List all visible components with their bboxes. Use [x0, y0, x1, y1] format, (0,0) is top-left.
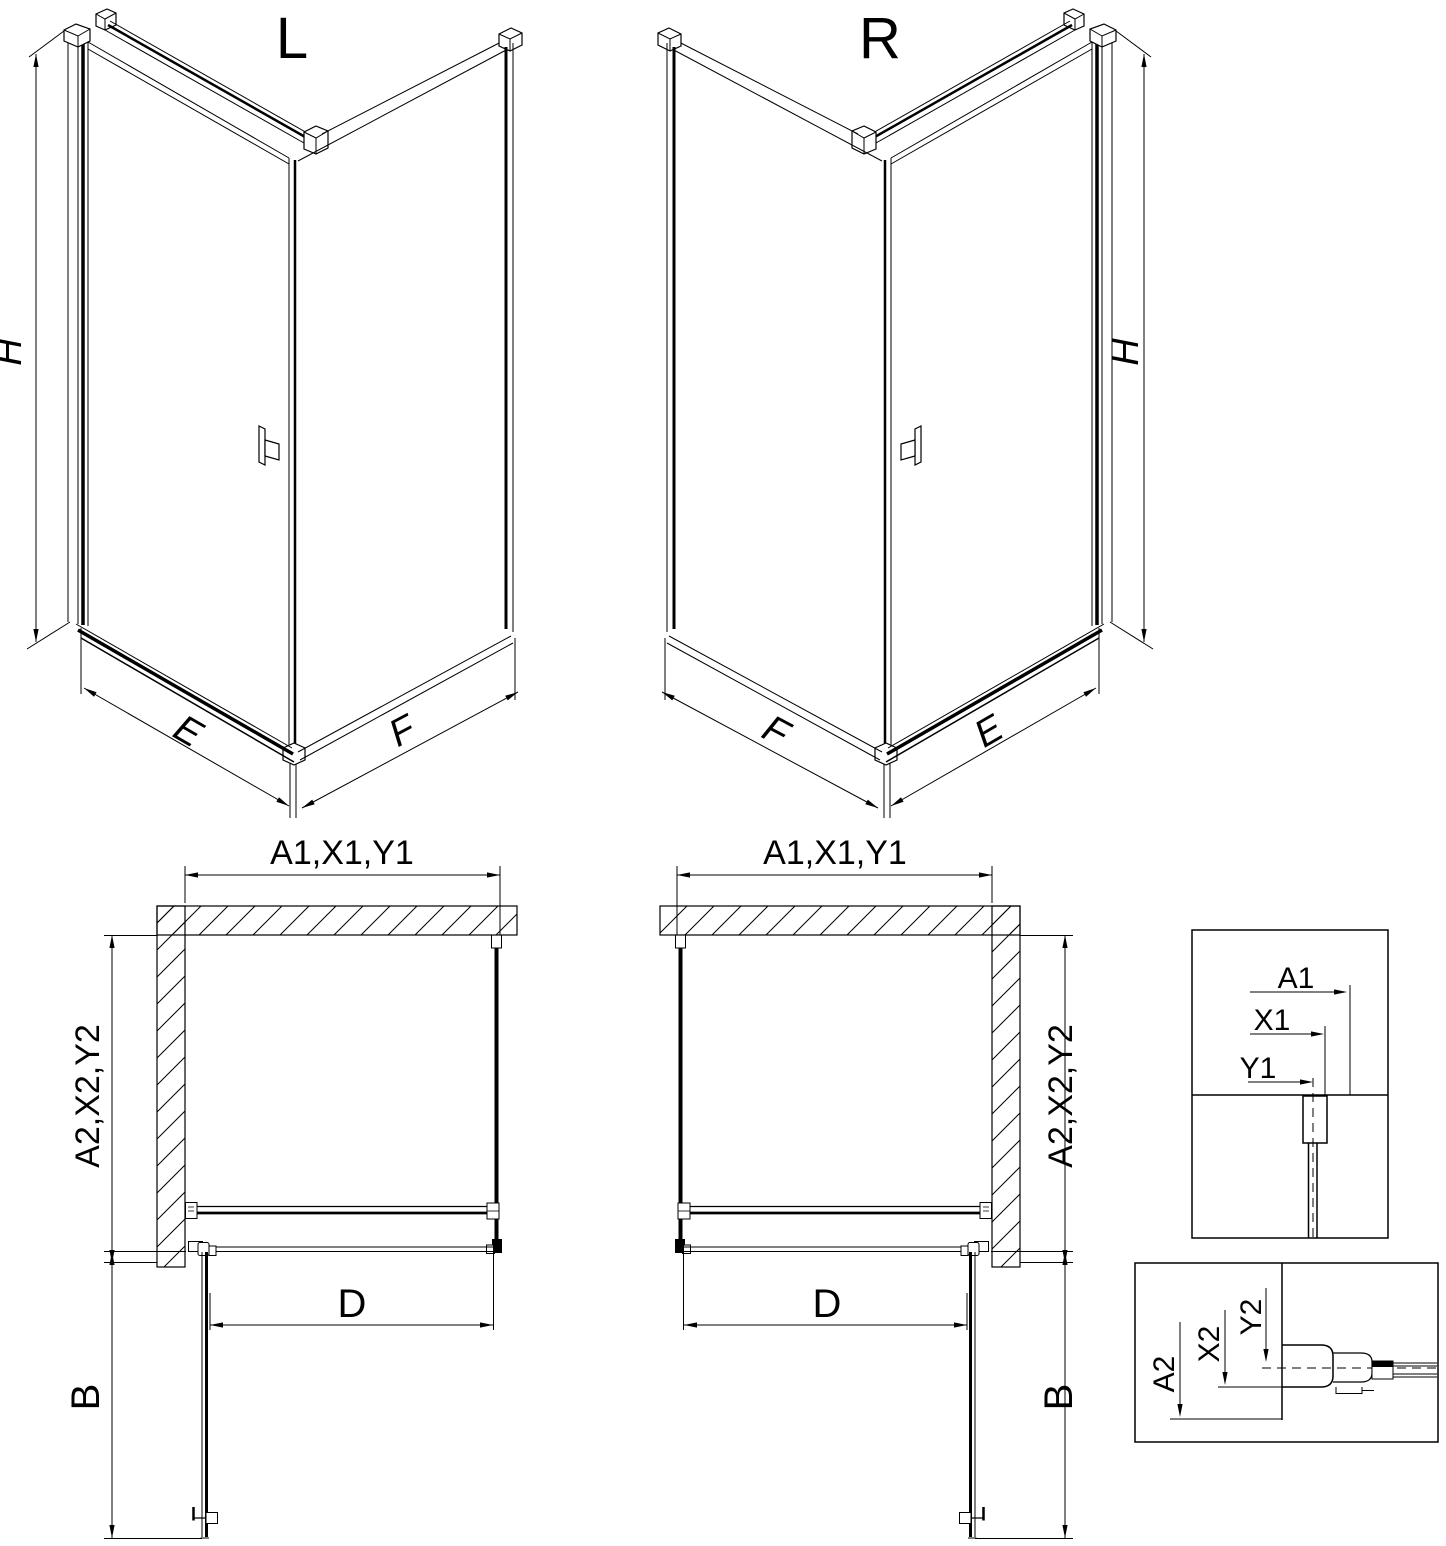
iso-right-door-side-label: E: [968, 707, 1012, 756]
plan-right-door-projection-label: B: [1037, 1384, 1081, 1411]
detail-depth-y2-label: Y2: [1235, 1299, 1268, 1336]
hinge-wall-profile: [64, 24, 90, 626]
dimension-h-lines: [27, 28, 70, 649]
iso-left-title: L: [276, 6, 308, 71]
detail-depth-a2-label: A2: [1148, 1356, 1181, 1393]
plan-left-opening-label: D: [338, 1282, 367, 1326]
iso-right-height-label: H: [1105, 338, 1147, 366]
iso-left-fixed-side-label: F: [382, 707, 424, 756]
plan-right-side-depth-label: A2,X2,Y2: [1042, 1024, 1080, 1168]
iso-right-title: R: [859, 6, 901, 71]
corner-bracket: [304, 126, 328, 154]
fixed-glass-panel: [298, 28, 522, 760]
plan-door-closed: [207, 1247, 494, 1252]
dimension-a2-lines: [104, 935, 157, 1263]
corner-post: [283, 158, 305, 818]
iso-left-door-side-label: E: [167, 707, 211, 756]
plan-left-top-width-label: A1,X1,Y1: [270, 834, 414, 872]
plan-right-opening-label: D: [813, 1282, 842, 1326]
plan-left-door-projection-label: B: [64, 1384, 108, 1411]
iso-right-fixed-side-label: F: [756, 707, 798, 756]
plan-right-top-width-label: A1,X1,Y1: [763, 834, 907, 872]
dimension-b-lines: [104, 1252, 202, 1539]
detail-depth-x2-label: X2: [1193, 1326, 1226, 1363]
plan-door-open: [201, 1252, 210, 1538]
iso-view-left-graphics: [27, 9, 522, 818]
plan-support-bar: [186, 1203, 500, 1220]
detail-width-a1-label: A1: [1278, 962, 1315, 995]
detail-box-depth: [1135, 1263, 1438, 1442]
technical-drawing-page: L H E F R H E F A1,X1,Y1 A2,X2,Y2 D B A1…: [0, 0, 1446, 1546]
iso-left-height-label: H: [0, 338, 30, 366]
door-handle-icon: [259, 426, 279, 465]
detail-width-x1-label: X1: [1254, 1004, 1291, 1037]
iso-view-right-graphics: [658, 9, 1153, 818]
plan-left-side-depth-label: A2,X2,Y2: [69, 1024, 107, 1168]
door-glass-panel: [88, 42, 289, 164]
detail-width-y1-label: Y1: [1240, 1052, 1277, 1085]
